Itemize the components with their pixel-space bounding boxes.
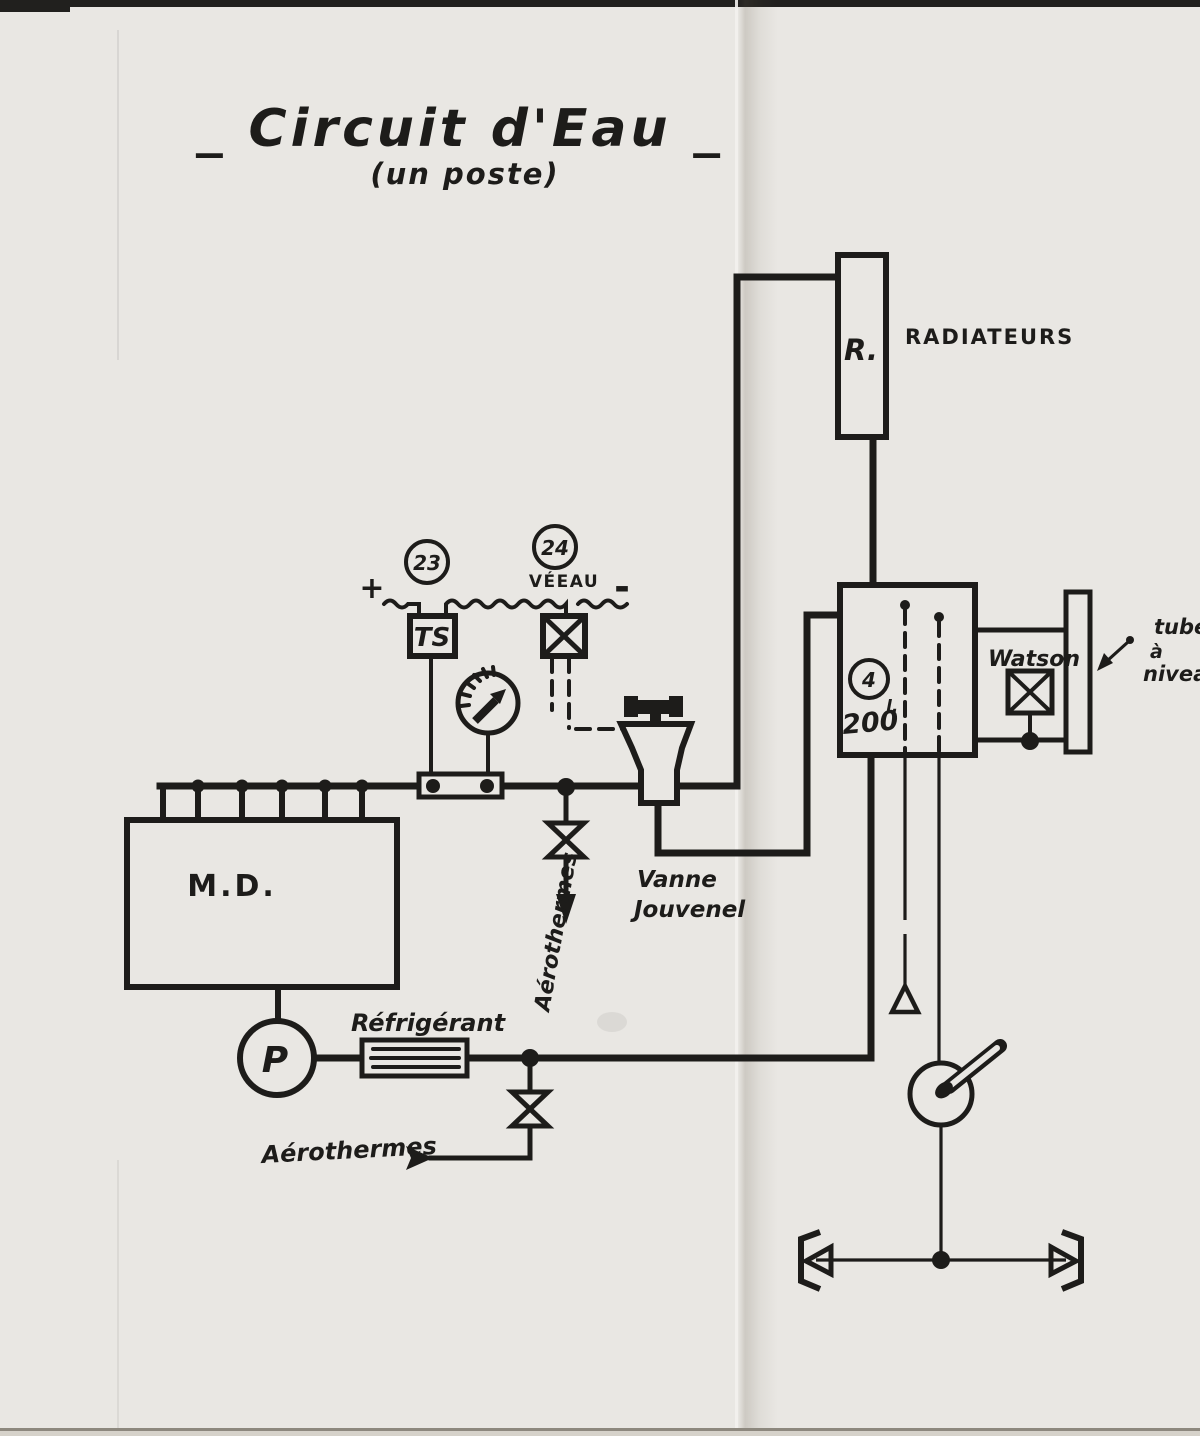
tank-capacity-unit: l. [886, 697, 898, 717]
thermostat-label: TS [414, 623, 450, 653]
bottom-fold-line [0, 1428, 1200, 1431]
float-weight-triangle [892, 986, 918, 1012]
cooler-label: Réfrigérant [351, 1009, 507, 1037]
manifold-joint-dot [356, 780, 369, 793]
scan-top-edge [0, 0, 1200, 7]
title-block: _ Circuit d'Eau _ (un poste) [195, 99, 723, 191]
ink-smudge [597, 1012, 627, 1032]
fitting-port-dot [426, 779, 440, 793]
level-tube-label-3: niveau [1143, 662, 1200, 686]
sensor-fitting [419, 774, 502, 797]
plus-terminal-label: + [359, 571, 384, 606]
radiator-label: RADIATEURS [905, 325, 1074, 349]
watson-valve-label: Watson [988, 647, 1080, 672]
drain-cock [910, 1046, 1000, 1125]
item-number-4: 4 [861, 668, 876, 692]
level-gauge-assembly: Watson tube à niveau [975, 592, 1200, 752]
diagram-subtitle: (un poste) [370, 157, 559, 191]
scan-top-left-edge [0, 0, 70, 12]
jouvenel-label-line1: Vanne [637, 867, 717, 893]
manifold-joint-dot [319, 780, 332, 793]
expansion-tank: 4 200 l. [840, 585, 975, 755]
aerotherms-mid-label: Aérothermes [530, 850, 583, 1015]
item-number-24: 24 [541, 536, 569, 560]
solenoid-valve-label: VÉEAU [529, 570, 599, 592]
radiator-tag: R. [844, 333, 878, 367]
radiator: R. RADIATEURS [838, 255, 1074, 437]
bottom-fold-light [0, 1431, 1200, 1436]
engine-label: M.D. [187, 869, 277, 904]
dip-tube-top-dot [900, 600, 910, 610]
item-number-23: 23 [413, 551, 441, 575]
temperature-gauge [458, 667, 518, 779]
valve-body-funnel [621, 724, 691, 803]
aerotherms-branch-mid: Aérothermes [530, 778, 584, 1015]
manifold-joint-dot [236, 780, 249, 793]
level-tube-label-1: tube [1154, 615, 1200, 639]
left-crease-bottom [117, 1160, 119, 1430]
manifold-joint-dot [276, 780, 289, 793]
solenoid-valve [543, 616, 585, 656]
valve-handle-bar [630, 700, 677, 714]
electrical-circuit: + - 23 24 VÉEAU TS [359, 526, 641, 779]
left-crease [117, 30, 119, 360]
paper-artifacts [0, 0, 1200, 1436]
jouvenel-label-line2: Jouvenel [630, 897, 746, 923]
cooler: Réfrigérant [351, 1009, 507, 1076]
tube-niveau-annotation: tube à niveau [1097, 615, 1200, 686]
jouvenel-valve: Vanne Jouvenel [621, 696, 746, 923]
level-tube-label-2: à [1150, 641, 1163, 663]
manifold-stubs [163, 786, 362, 822]
engine-block: M.D. [127, 820, 397, 987]
water-pump: P [240, 1021, 314, 1095]
pilot-line-right [569, 658, 641, 729]
vertical-fold-shadow [738, 0, 778, 1436]
pump-label: P [262, 1040, 288, 1081]
fitting-port-dot [480, 779, 494, 793]
hand-valve-lower [512, 1109, 548, 1126]
annotation-arrow-line [1107, 642, 1128, 661]
scanned-diagram-page: _ Circuit d'Eau _ (un poste) + - 23 [0, 0, 1200, 1436]
diagram-title: _ Circuit d'Eau _ [195, 99, 723, 159]
manifold-joint-dot [192, 780, 205, 793]
sight-level-tube [1066, 592, 1090, 752]
tank-drain-assembly [801, 755, 1081, 1289]
dip-tube-top-dot [934, 612, 944, 622]
watson-valve-dot [1021, 732, 1039, 750]
